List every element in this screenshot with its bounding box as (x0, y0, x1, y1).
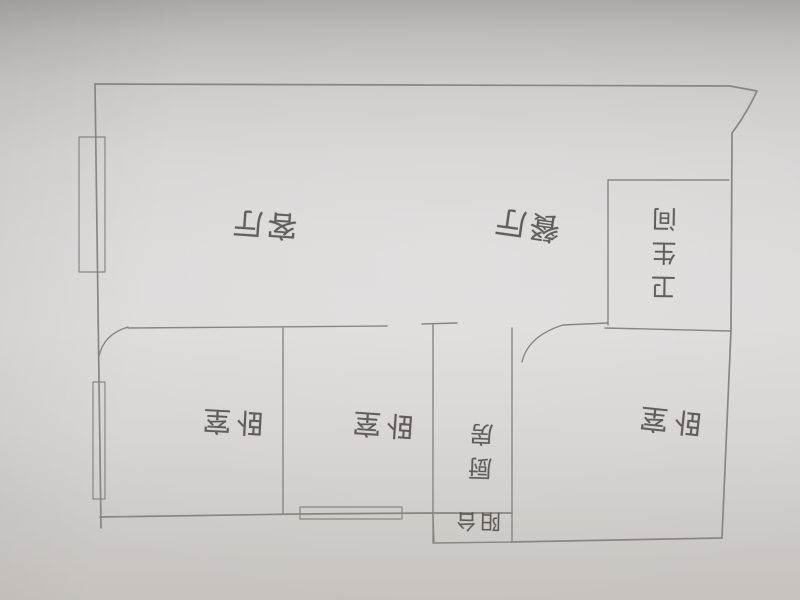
room-label-bedroom-right: 卧室 (619, 392, 718, 452)
room-label-living-room: 客厅 (216, 200, 309, 254)
window-left-upper (79, 137, 105, 272)
wall-bathroom-bottom (605, 328, 730, 331)
wall-kitchen-top (422, 323, 457, 324)
wall-bedrooms-top (128, 326, 387, 328)
door-arc-bedroom-left (99, 327, 128, 356)
room-label-bedroom-left: 卧室 (185, 397, 277, 450)
wall-top-right-outline (95, 84, 757, 542)
room-label-kitchen: 厨房 (456, 398, 509, 496)
wall-left (95, 84, 101, 528)
wall-dining-bedroom (563, 323, 608, 325)
paper-photo-background: 客厅 餐厅 卫生间 卧室 卧室 厨房 阳台 卧室 (0, 0, 800, 600)
room-label-bathroom: 卫生间 (640, 185, 692, 314)
room-label-bedroom-middle: 卧室 (334, 399, 427, 453)
room-label-balcony: 阳台 (441, 503, 514, 540)
door-arc-bedroom-right (522, 325, 563, 362)
